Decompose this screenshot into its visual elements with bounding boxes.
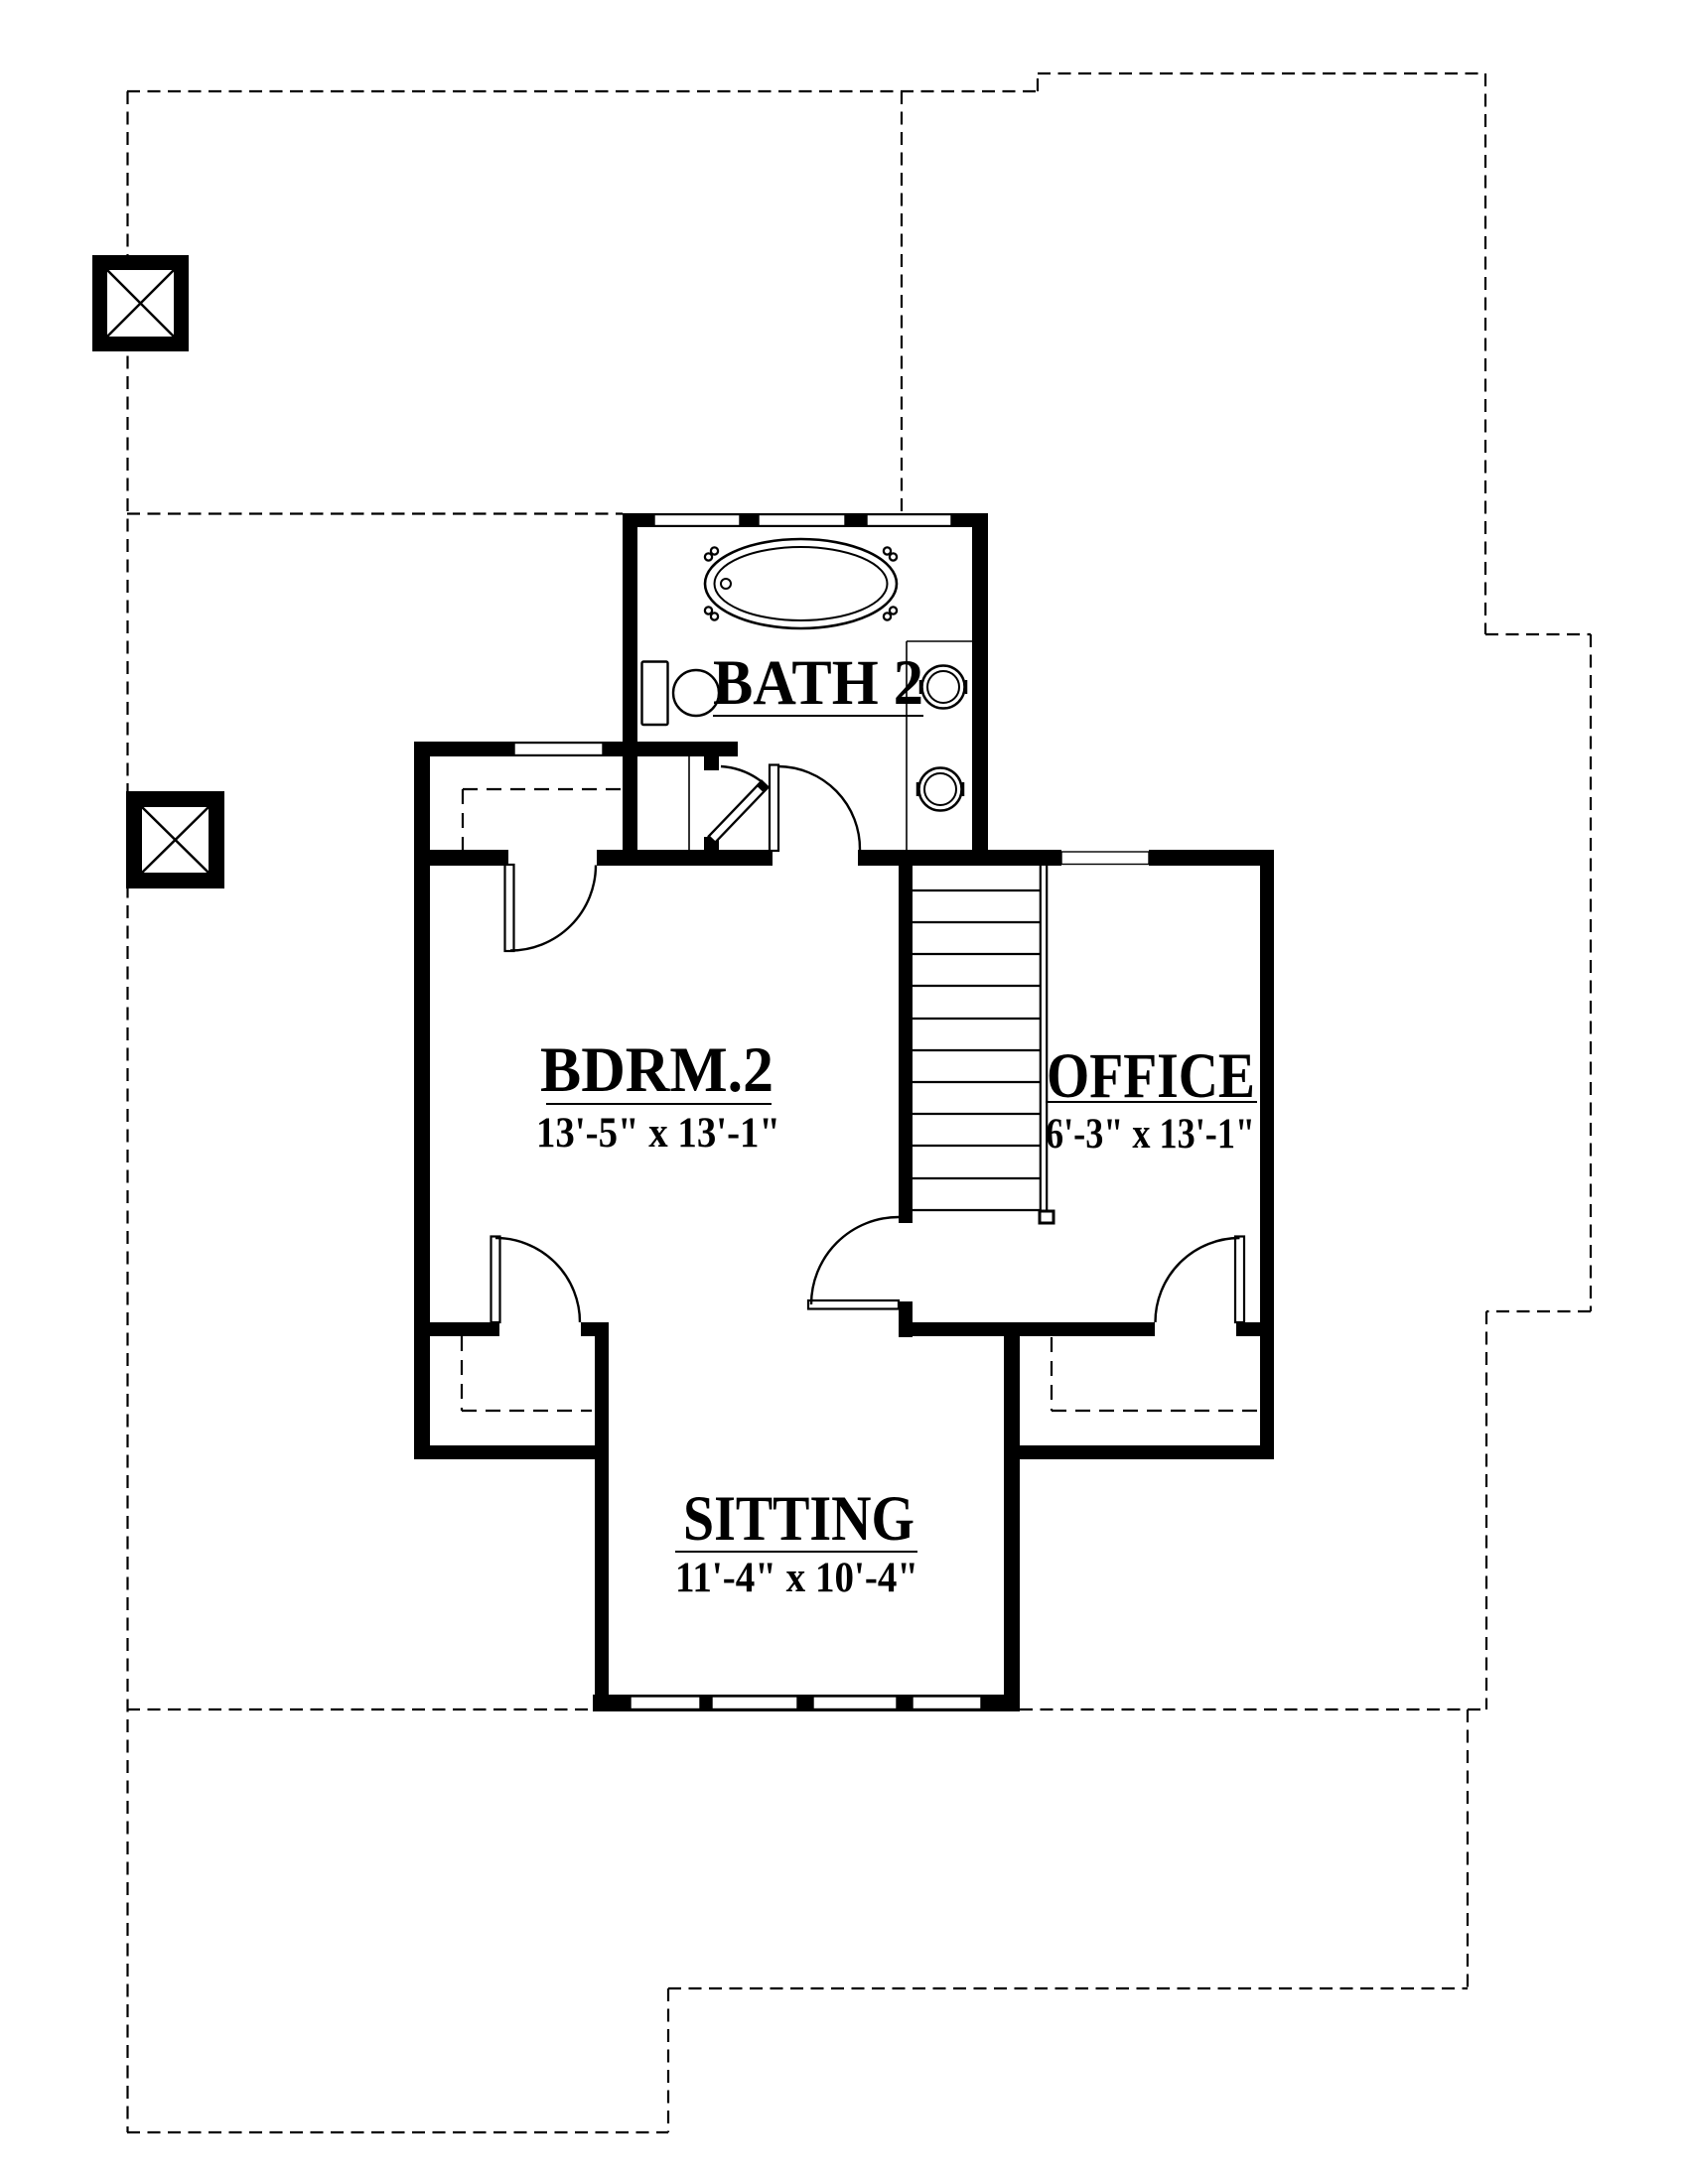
svg-text:6'-3" x 13'-1": 6'-3" x 13'-1" — [1046, 1111, 1255, 1158]
svg-text:BATH 2: BATH 2 — [713, 647, 923, 719]
svg-text:BDRM.2: BDRM.2 — [540, 1034, 774, 1106]
svg-text:SITTING: SITTING — [683, 1483, 914, 1555]
svg-text:13'-5" x 13'-1": 13'-5" x 13'-1" — [536, 1110, 780, 1157]
svg-text:11'-4" x 10'-4": 11'-4" x 10'-4" — [675, 1555, 918, 1601]
